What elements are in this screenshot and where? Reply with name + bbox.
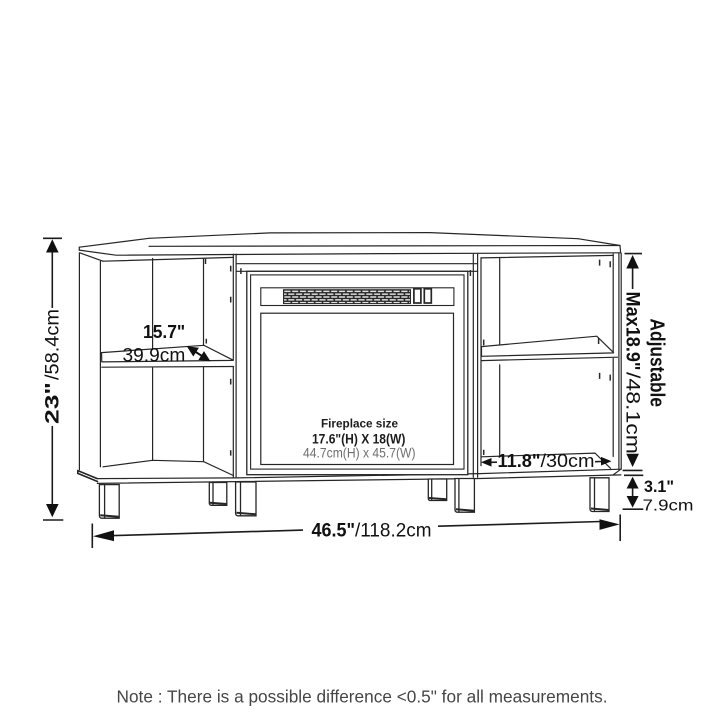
svg-text:23"/58.4cm: 23"/58.4cm (43, 309, 64, 424)
svg-text:46.5"/118.2cm: 46.5"/118.2cm (312, 521, 432, 542)
svg-text:7.9cm: 7.9cm (643, 498, 694, 515)
svg-text:44.7cm(H) x 45.7(W): 44.7cm(H) x 45.7(W) (303, 444, 416, 460)
svg-text:39.9cm: 39.9cm (123, 345, 186, 366)
svg-text:11.8"/30cm: 11.8"/30cm (498, 450, 595, 471)
svg-text:3.1": 3.1" (644, 478, 674, 496)
svg-text:Max18.9"/48.1cm: Max18.9"/48.1cm (622, 292, 643, 455)
svg-text:Note : There is a possible dif: Note : There is a possible difference <0… (117, 687, 608, 707)
svg-text:15.7": 15.7" (143, 321, 185, 342)
svg-text:Adjustable: Adjustable (646, 319, 668, 408)
svg-text:Fireplace size: Fireplace size (321, 419, 398, 431)
